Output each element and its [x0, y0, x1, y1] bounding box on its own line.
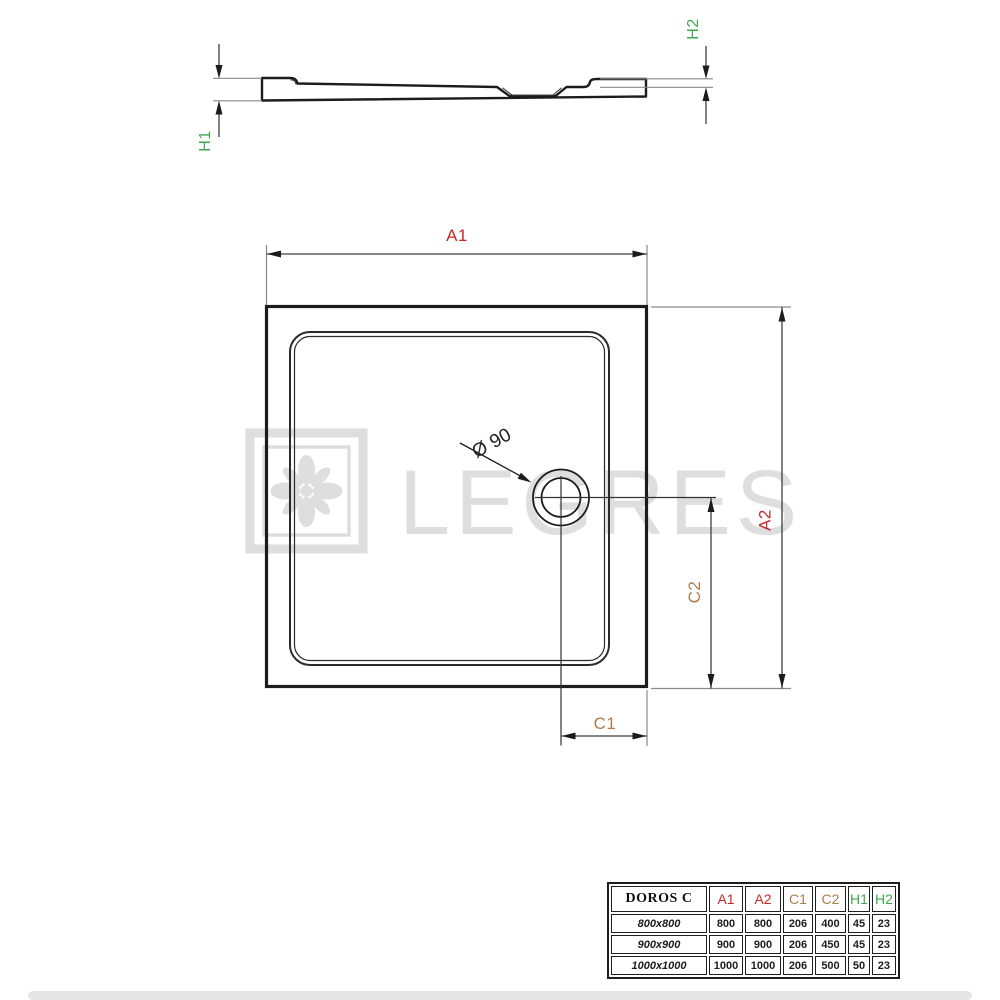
- size-cell: 800x800: [611, 914, 707, 933]
- a1-label: A1: [446, 226, 468, 245]
- tray-section-outline: [262, 78, 646, 101]
- spec-table: DOROS C A1 A2 C1 C2 H1 H2 800x800 800 80…: [607, 882, 900, 979]
- a2-arrow-up-icon: [779, 308, 786, 322]
- value-cell: 500: [815, 956, 846, 975]
- value-cell: 206: [783, 956, 813, 975]
- col-header-h1: H1: [848, 886, 870, 912]
- c2-label: C2: [685, 581, 704, 604]
- a2-arrow-down-icon: [779, 674, 786, 688]
- value-cell: 900: [709, 935, 743, 954]
- a2-label: A2: [755, 509, 774, 531]
- value-cell: 800: [709, 914, 743, 933]
- tray-section-inner-dip: [503, 88, 562, 95]
- value-cell: 1000: [709, 956, 743, 975]
- value-cell: 45: [848, 935, 870, 954]
- col-header-c1: C1: [783, 886, 813, 912]
- c1-arrow-right-icon: [633, 733, 647, 740]
- table-row: 800x800 800 800 206 400 45 23: [611, 914, 896, 933]
- bottom-divider-bar: [28, 991, 972, 1000]
- a1-arrow-right-icon: [633, 251, 647, 258]
- table-title: DOROS C: [611, 886, 707, 912]
- c2-arrow-down-icon: [708, 674, 715, 688]
- h2-arrow-up-icon: [703, 87, 710, 101]
- table-row: 900x900 900 900 206 450 45 23: [611, 935, 896, 954]
- h2-arrow-down-icon: [703, 66, 710, 79]
- value-cell: 400: [815, 914, 846, 933]
- col-header-a1: A1: [709, 886, 743, 912]
- h2-label: H2: [685, 18, 702, 39]
- table-row: 1000x1000 1000 1000 206 500 50 23: [611, 956, 896, 975]
- watermark-text: LEGRES: [399, 452, 802, 554]
- value-cell: 23: [872, 914, 896, 933]
- value-cell: 800: [745, 914, 781, 933]
- h1-label: H1: [197, 130, 214, 151]
- value-cell: 23: [872, 935, 896, 954]
- c1-arrow-left-icon: [562, 733, 576, 740]
- spec-table-header-row: DOROS C A1 A2 C1 C2 H1 H2: [611, 886, 896, 912]
- value-cell: 45: [848, 914, 870, 933]
- value-cell: 900: [745, 935, 781, 954]
- value-cell: 206: [783, 935, 813, 954]
- size-cell: 900x900: [611, 935, 707, 954]
- value-cell: 206: [783, 914, 813, 933]
- col-header-h2: H2: [872, 886, 896, 912]
- value-cell: 1000: [745, 956, 781, 975]
- drawing-svg: LEGRES H1: [0, 0, 1000, 1000]
- h1-arrow-up-icon: [216, 101, 223, 115]
- shower-tray-technical-drawing: LEGRES H1: [0, 0, 1000, 1000]
- flower-ornament-icon: [271, 455, 343, 527]
- watermark: LEGRES: [250, 433, 802, 554]
- size-cell: 1000x1000: [611, 956, 707, 975]
- value-cell: 450: [815, 935, 846, 954]
- value-cell: 50: [848, 956, 870, 975]
- side-view: H1 H2: [197, 18, 713, 151]
- c1-label: C1: [594, 714, 617, 733]
- a1-arrow-left-icon: [267, 251, 281, 258]
- h1-arrow-down-icon: [216, 65, 223, 79]
- col-header-c2: C2: [815, 886, 846, 912]
- value-cell: 23: [872, 956, 896, 975]
- col-header-a2: A2: [745, 886, 781, 912]
